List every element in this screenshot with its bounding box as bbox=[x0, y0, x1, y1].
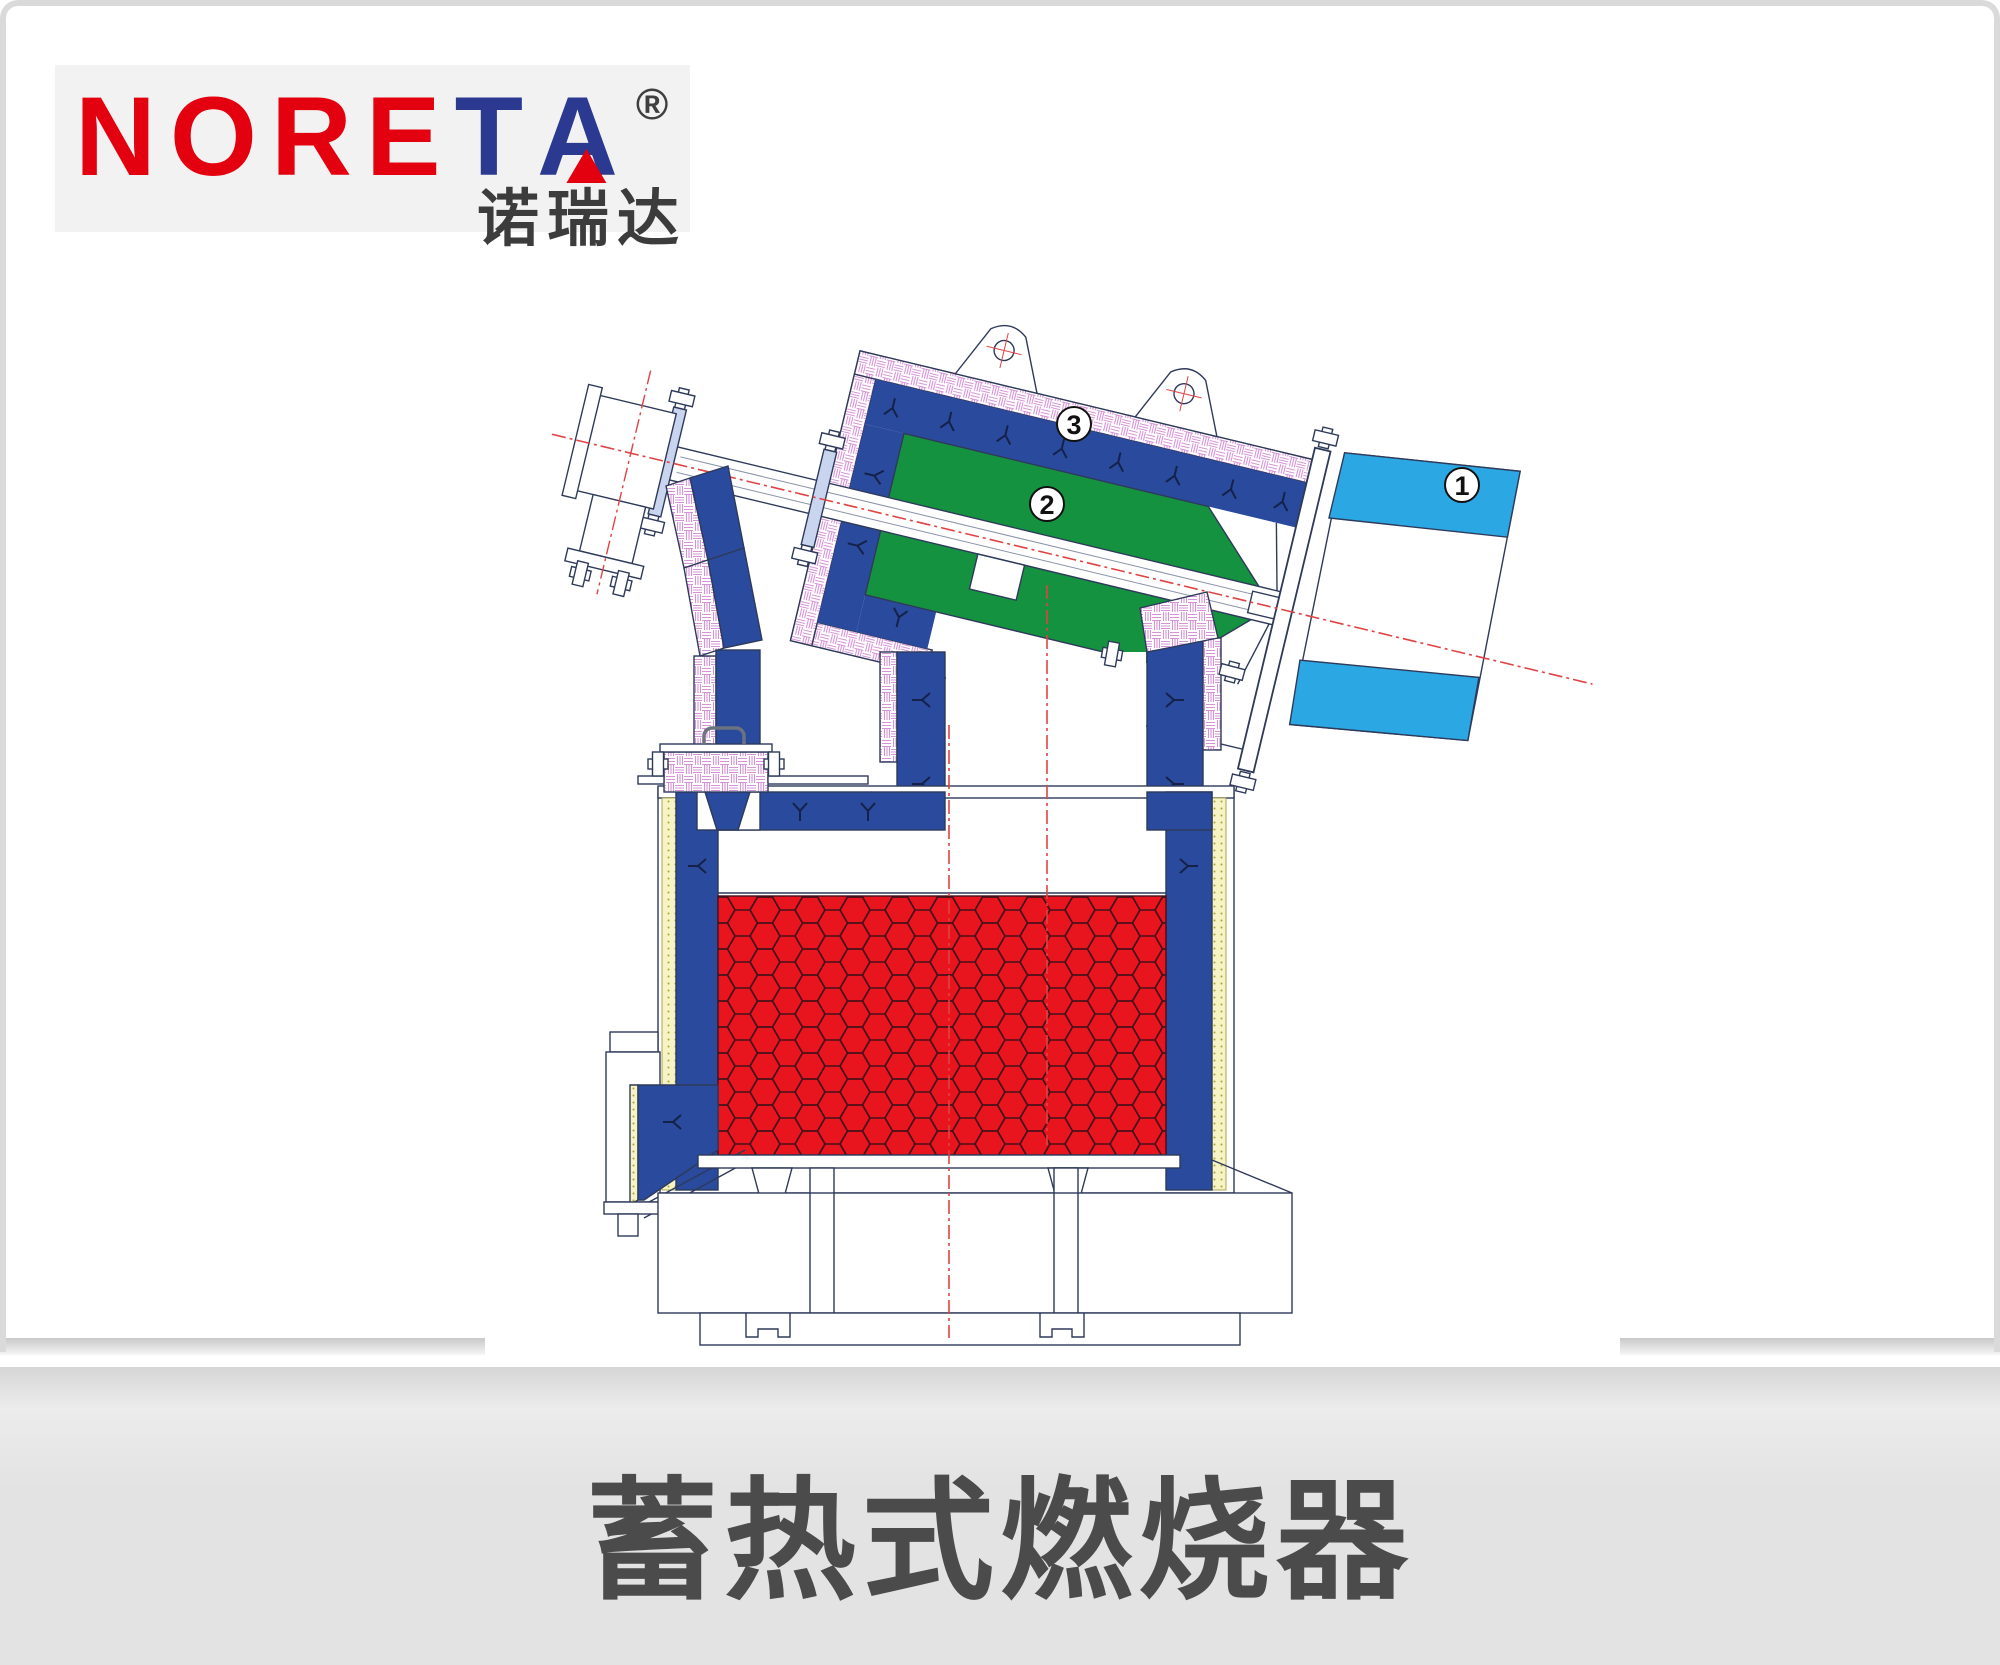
page: NORETA® 诺瑞达 bbox=[0, 0, 2000, 1665]
regenerator-chamber bbox=[638, 728, 1234, 1193]
burner-diagram: 1 2 3 bbox=[485, 255, 1620, 1362]
callout-2: 2 bbox=[1039, 490, 1054, 520]
product-title: 蓄热式燃烧器 bbox=[0, 1435, 2000, 1626]
product-image[interactable]: 1 2 3 bbox=[485, 255, 1620, 1362]
stepped-wall bbox=[666, 466, 762, 752]
logo-text-red: NORE bbox=[75, 81, 455, 193]
logo-chinese-name: 诺瑞达 bbox=[477, 168, 687, 258]
callout-1: 1 bbox=[1454, 471, 1469, 501]
footer-bar: 蓄热式燃烧器 bbox=[0, 1367, 2000, 1665]
registered-trademark-icon: ® bbox=[636, 83, 668, 127]
callout-3: 3 bbox=[1066, 410, 1081, 440]
honeycomb-block bbox=[718, 896, 1166, 1155]
